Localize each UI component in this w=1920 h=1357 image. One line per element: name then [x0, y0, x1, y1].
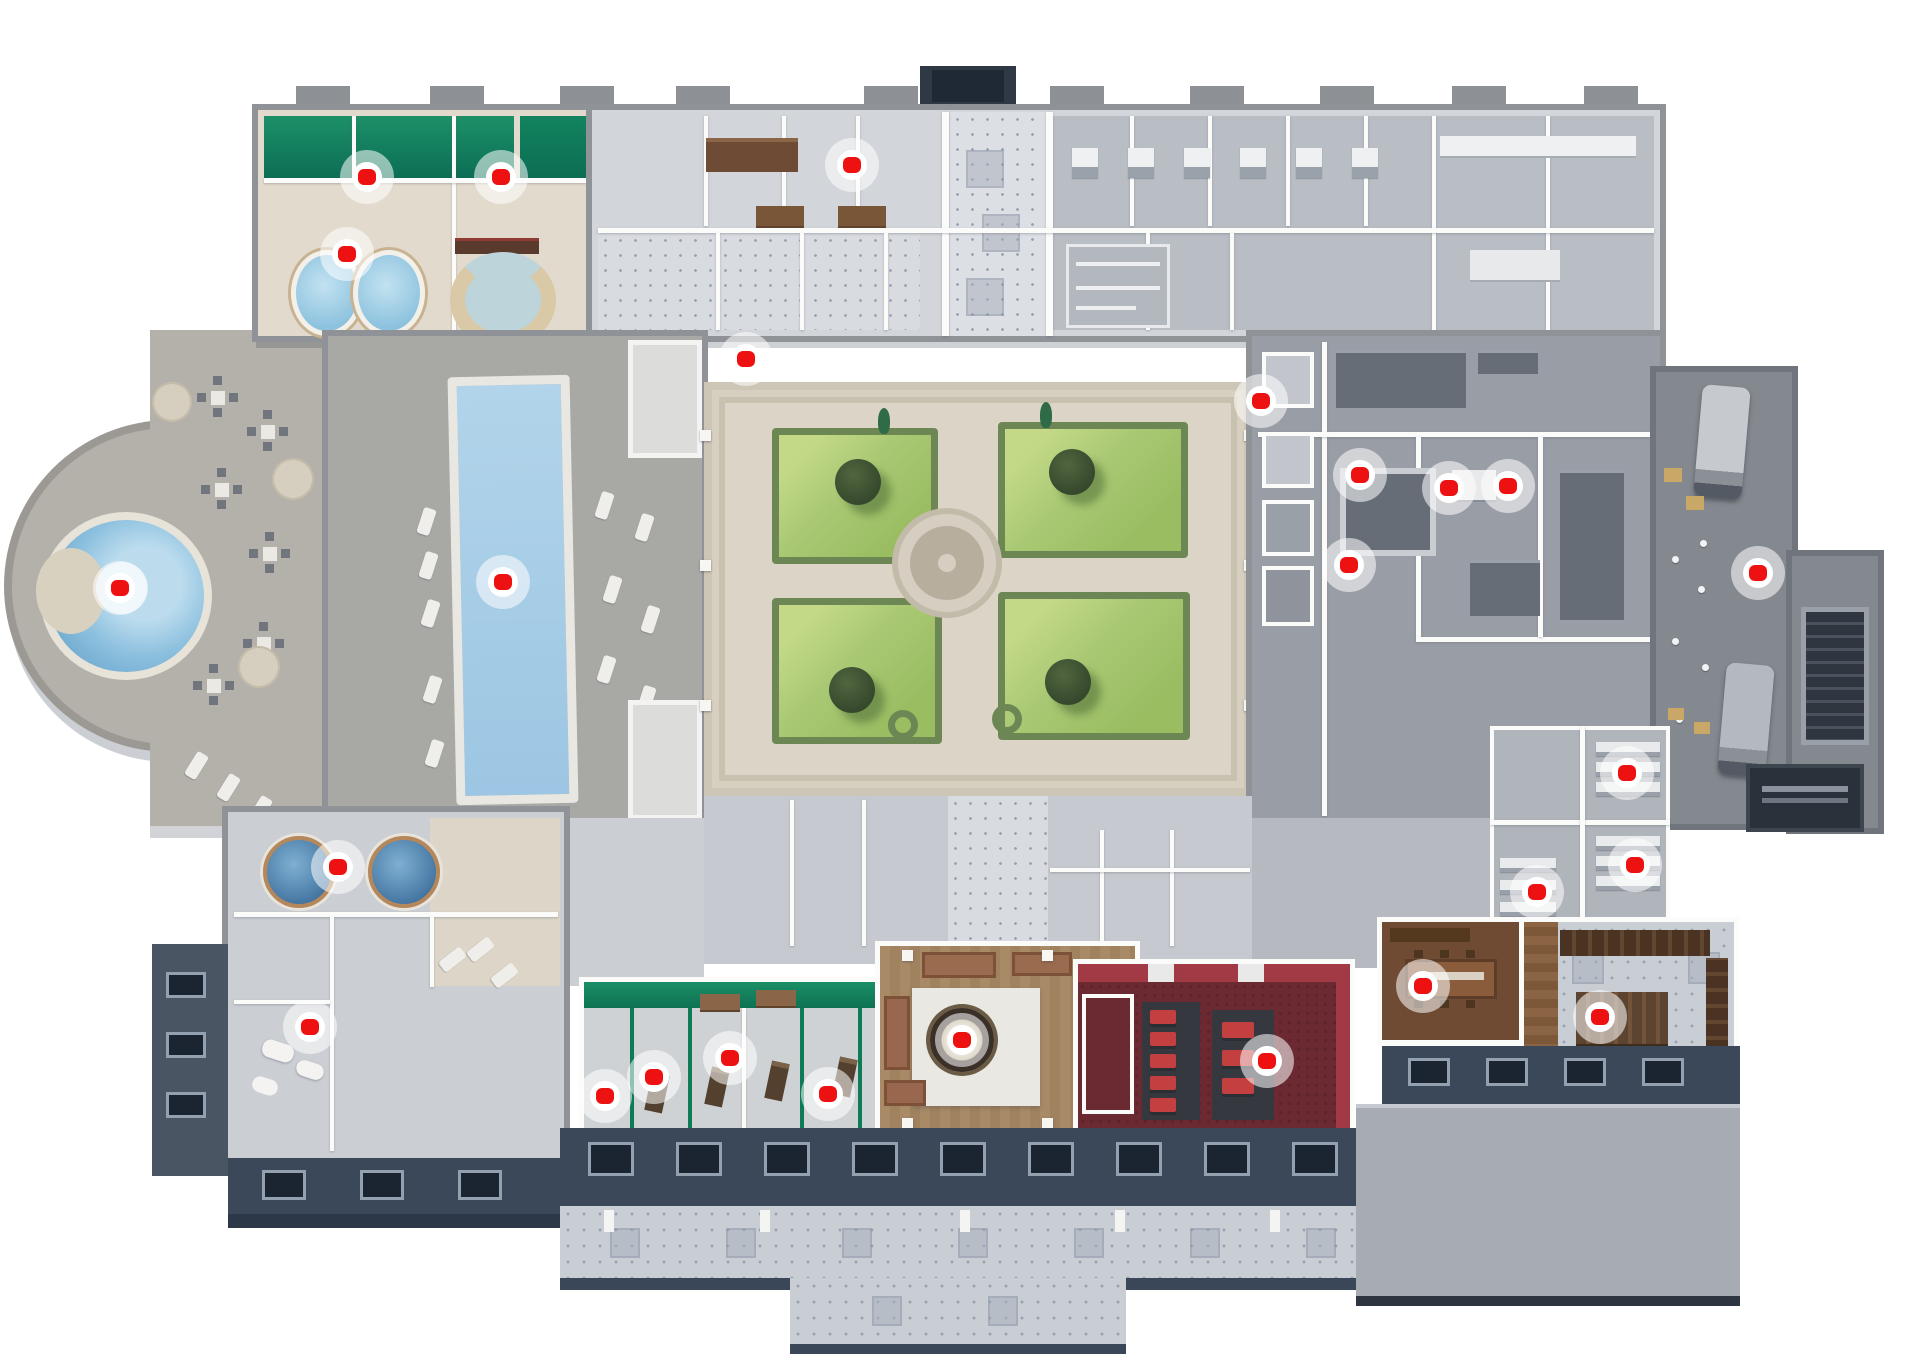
- corridor-medallion: [982, 214, 1020, 252]
- cabin-green-wall: [584, 982, 902, 1008]
- marker-dot-icon: [843, 157, 861, 173]
- corridor-medallion: [966, 278, 1004, 316]
- cinema-seat: [1150, 1054, 1176, 1068]
- marker-dot-icon: [329, 859, 347, 875]
- pallet: [1686, 496, 1704, 510]
- cinema-seat: [1150, 1098, 1176, 1112]
- partition: [598, 228, 1654, 233]
- marker-dot-icon: [1440, 480, 1458, 496]
- facade-window: [1408, 1058, 1450, 1086]
- pipe: [1076, 286, 1160, 290]
- cabin-partition: [688, 1008, 692, 1128]
- laundry-machine: [1352, 148, 1378, 178]
- lounge-sofa: [884, 996, 910, 1070]
- cinema-sofa: [1222, 1022, 1254, 1038]
- partition: [1170, 830, 1174, 946]
- marker-dot-icon: [1351, 467, 1369, 483]
- cinema-seat: [1150, 1010, 1176, 1024]
- kitchen-island: [1470, 250, 1560, 280]
- pool-alcove: [628, 700, 702, 820]
- facade-window: [1486, 1058, 1528, 1086]
- dining-chair: [1414, 950, 1423, 958]
- lounge-column: [902, 950, 913, 961]
- partition: [716, 233, 720, 330]
- terrace-medallion: [1190, 1228, 1220, 1258]
- terrace-pillar: [1270, 1210, 1280, 1232]
- marker-dot-icon: [301, 1019, 319, 1035]
- facade-window: [166, 972, 206, 998]
- bollard: [1698, 586, 1705, 593]
- cinema-wall: [1336, 964, 1350, 1132]
- spa-green-wall: [520, 116, 586, 178]
- laundry-machine: [1296, 148, 1322, 178]
- cabin-partition: [800, 1008, 804, 1128]
- cypress: [878, 408, 890, 434]
- terrace-medallion: [842, 1228, 872, 1258]
- kitchen-equipment: [1336, 350, 1466, 408]
- truck: [1717, 662, 1775, 778]
- lounge-column: [1042, 950, 1053, 961]
- facade-window: [166, 1092, 206, 1118]
- south-corridor: [948, 796, 1048, 948]
- marker-dot-icon: [737, 351, 755, 367]
- hedge-spiral: [992, 704, 1022, 734]
- facade-window: [1204, 1142, 1250, 1176]
- entrance-vestibule-roof: [932, 70, 1004, 102]
- marker-dot-icon: [492, 169, 510, 185]
- parasol: [272, 458, 314, 500]
- partition: [800, 233, 804, 330]
- pool-alcove: [628, 340, 702, 458]
- partition: [1286, 116, 1290, 226]
- marker-dot-icon: [953, 1032, 971, 1048]
- bollard: [1700, 540, 1707, 547]
- tree: [829, 667, 875, 713]
- partition: [1046, 112, 1053, 336]
- facade-window: [1116, 1142, 1162, 1176]
- cinema-seat: [1150, 1032, 1176, 1046]
- partition: [234, 912, 558, 917]
- facade-window: [852, 1142, 898, 1176]
- dining-table-small: [756, 206, 804, 226]
- partition: [862, 800, 866, 946]
- partition: [430, 917, 434, 987]
- cinema-door: [1238, 964, 1264, 982]
- terrace-medallion: [726, 1228, 756, 1258]
- marker-dot-icon: [1626, 857, 1644, 873]
- terrace-medallion: [872, 1296, 902, 1326]
- facade-window: [1642, 1058, 1684, 1086]
- terrace-medallion: [988, 1296, 1018, 1326]
- facade-window: [1292, 1142, 1338, 1176]
- pipe: [1076, 262, 1160, 266]
- pallet: [1694, 722, 1710, 734]
- bar-medallion: [1572, 952, 1604, 984]
- terrace-pillar: [760, 1210, 770, 1232]
- laundry-machine: [1128, 148, 1154, 178]
- marker-dot-icon: [1414, 978, 1432, 994]
- facade-window: [262, 1170, 306, 1200]
- partition: [1258, 432, 1654, 437]
- truck: [1693, 384, 1751, 500]
- fountain-center: [938, 554, 956, 572]
- marker-dot-icon: [819, 1086, 837, 1102]
- marker-dot-icon: [1528, 884, 1546, 900]
- kitchen-shelf: [1440, 136, 1636, 156]
- cypress: [1040, 402, 1052, 428]
- partition: [264, 178, 586, 183]
- kitchen-equipment: [1478, 350, 1538, 374]
- partition: [790, 800, 794, 946]
- marker-dot-icon: [645, 1069, 663, 1085]
- marker-dot-icon: [1340, 557, 1358, 573]
- marker-dot-icon: [1618, 765, 1636, 781]
- kitchen-equipment: [1470, 560, 1540, 616]
- partition: [1416, 637, 1654, 642]
- corridor-medallion: [966, 150, 1004, 188]
- partition: [1580, 726, 1585, 940]
- wood-counter: [706, 138, 798, 172]
- lounge-sofa: [884, 1080, 926, 1106]
- dining-table-small: [838, 206, 886, 226]
- partition: [884, 233, 888, 330]
- laundry-machine: [1240, 148, 1266, 178]
- parasol: [152, 382, 192, 422]
- pallet: [1664, 468, 1682, 482]
- garden-parterre: [998, 422, 1188, 558]
- facade-window: [166, 1032, 206, 1058]
- marker-dot-icon: [596, 1088, 614, 1104]
- garden-parterre: [998, 592, 1190, 740]
- pallet: [1668, 708, 1684, 720]
- marker-dot-icon: [1749, 565, 1767, 581]
- pipe: [1076, 306, 1136, 310]
- facade-window: [458, 1170, 502, 1200]
- tiled-room: [598, 233, 920, 330]
- terrace-medallion: [1074, 1228, 1104, 1258]
- marker-dot-icon: [1591, 1009, 1609, 1025]
- marker-dot-icon: [111, 580, 129, 596]
- facade-window: [764, 1142, 810, 1176]
- reception-desk: [450, 252, 556, 348]
- cinema-wall: [1078, 964, 1350, 982]
- stairwell: [1806, 612, 1864, 740]
- parking-ramp-sign: [1762, 798, 1848, 803]
- bar-shelf-wall: [1560, 930, 1710, 956]
- facade-window: [360, 1170, 404, 1200]
- tree: [1049, 449, 1095, 495]
- terrace-pillar: [604, 1210, 614, 1232]
- courtyard-column: [700, 430, 711, 441]
- marker-dot-icon: [1258, 1053, 1276, 1069]
- laundry-machine: [1184, 148, 1210, 178]
- terrace-medallion: [1306, 1228, 1336, 1258]
- facade-window: [676, 1142, 722, 1176]
- dining-sideboard: [1390, 928, 1470, 942]
- service-pod: [1262, 500, 1314, 556]
- bollard: [1672, 638, 1679, 645]
- dining-chair: [1440, 950, 1449, 958]
- tree: [1045, 659, 1091, 705]
- facade-window: [1028, 1142, 1074, 1176]
- bollard: [1672, 556, 1679, 563]
- marker-dot-icon: [494, 574, 512, 590]
- bollard: [1702, 664, 1709, 671]
- marker-dot-icon: [1252, 393, 1270, 409]
- facade-window: [1564, 1058, 1606, 1086]
- tree: [835, 459, 881, 505]
- cafe-table-group: [756, 990, 796, 1006]
- parasol: [238, 646, 280, 688]
- partition: [1432, 116, 1436, 330]
- courtyard-column: [700, 700, 711, 711]
- south-terrace-ext: [790, 1278, 1126, 1344]
- service-pod: [1262, 566, 1314, 626]
- dining-chair: [1466, 950, 1475, 958]
- terrace-pillar: [960, 1210, 970, 1232]
- marker-dot-icon: [358, 169, 376, 185]
- partition: [1050, 868, 1250, 872]
- partition: [1100, 830, 1104, 946]
- southeast-ground: [1356, 1104, 1740, 1296]
- cafe-table-group: [700, 994, 740, 1010]
- cabin-partition: [858, 1008, 862, 1128]
- dining-chair: [1466, 1000, 1475, 1008]
- marker-dot-icon: [721, 1050, 739, 1066]
- laundry-machine: [1072, 148, 1098, 178]
- floorplan: [0, 0, 1920, 1357]
- kitchen-equipment: [1560, 470, 1624, 620]
- partition: [942, 112, 949, 336]
- facade-window: [588, 1142, 634, 1176]
- terrace-pillar: [1115, 1210, 1125, 1232]
- partition: [1230, 233, 1234, 330]
- parking-ramp-sign: [1762, 786, 1848, 792]
- courtyard-column: [700, 560, 711, 571]
- cinema-door: [1148, 964, 1174, 982]
- terrace-medallion: [610, 1228, 640, 1258]
- terrace-medallion: [958, 1228, 988, 1258]
- projection-room: [1082, 994, 1134, 1114]
- lounge-sofa: [922, 952, 996, 978]
- marker-dot-icon: [1499, 478, 1517, 494]
- hedge-spiral: [888, 710, 918, 740]
- service-pod: [1262, 432, 1314, 488]
- marker-dot-icon: [338, 246, 356, 262]
- cinema-seat: [1150, 1076, 1176, 1090]
- facade-window: [940, 1142, 986, 1176]
- cold-plunge-tub: [368, 836, 440, 908]
